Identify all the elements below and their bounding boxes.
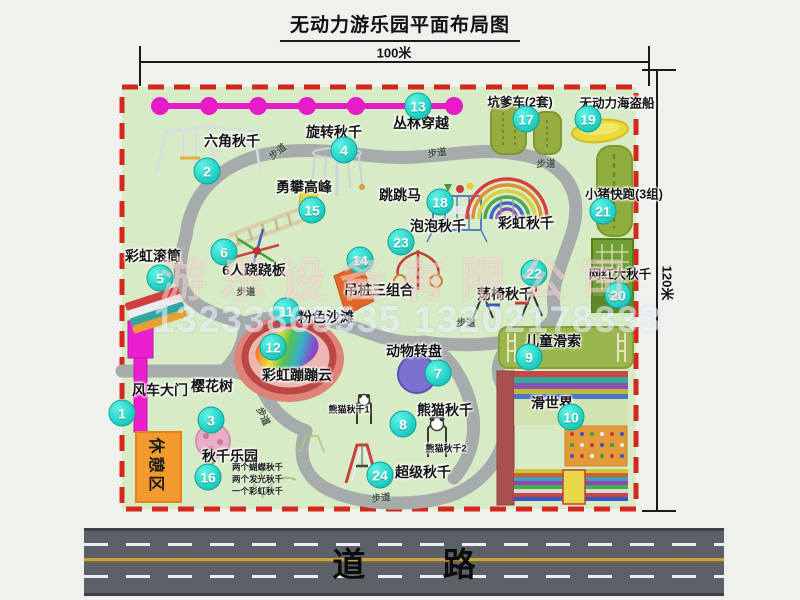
attraction-label-20: 网红大秋千 — [589, 264, 652, 283]
attraction-label-12: 彩虹蹦蹦云 — [262, 365, 332, 385]
attraction-marker-5: 5 — [147, 265, 174, 292]
walkway-tag: 步道 — [427, 144, 448, 161]
walkway-tag: 步道 — [371, 489, 391, 505]
walkway-tag: 步道 — [456, 315, 475, 329]
attraction-label-15: 勇攀高峰 — [276, 177, 332, 197]
attraction-marker-1: 1 — [109, 400, 136, 427]
attraction-label-7: 动物转盘 — [386, 341, 442, 361]
attraction-marker-7: 7 — [425, 360, 452, 387]
walkway-tag: 步道 — [536, 156, 555, 170]
page-title: 无动力游乐园平面布局图 — [280, 10, 520, 42]
attraction-marker-19: 19 — [575, 106, 602, 133]
attraction-label-1: 风车大门 — [132, 380, 188, 400]
attraction-marker-3: 3 — [198, 407, 225, 434]
height-dimension-label: 120米 — [659, 266, 678, 301]
attraction-marker-6: 6 — [211, 239, 238, 266]
rainbow-cloud-icon — [234, 316, 344, 402]
attraction-label-24: 超级秋千 — [395, 462, 451, 482]
attraction-marker-21: 21 — [590, 198, 617, 225]
attraction-marker-12: 12 — [260, 334, 287, 361]
attraction-marker-9: 9 — [516, 344, 543, 371]
attraction-marker-11: 11 — [273, 298, 300, 325]
attraction-marker-14: 14 — [347, 247, 374, 274]
attraction-label-22: 荡椅秋千 — [477, 284, 533, 304]
attraction-label-2: 六角秋千 — [204, 131, 260, 151]
attraction-label-14: 吊桩三组合 — [344, 280, 414, 300]
attraction-marker-13: 13 — [405, 93, 432, 120]
panda-swing-2-label: 熊猫秋千2 — [425, 442, 466, 455]
attraction-label-11: 粉色沙滩 — [298, 307, 354, 327]
attraction-marker-17: 17 — [513, 106, 540, 133]
map-illustrations — [0, 0, 800, 600]
rainbow-roller-icon — [124, 286, 187, 334]
attraction-marker-4: 4 — [331, 137, 358, 164]
road-label: 道 路 — [298, 538, 509, 586]
watermark-phone: 13233865535 13202178333 — [154, 299, 663, 341]
attraction-label-18: 跳跳马 — [379, 185, 421, 205]
attraction-marker-15: 15 — [299, 197, 326, 224]
attraction-label-3: 樱花树 — [191, 376, 233, 396]
panda-swing-1-label: 熊猫秋千1 — [328, 403, 369, 416]
attraction-marker-23: 23 — [388, 229, 415, 256]
attraction-marker-16: 16 — [195, 464, 222, 491]
attraction-marker-2: 2 — [194, 158, 221, 185]
walkway-tag: 步道 — [254, 404, 275, 427]
walkway-tag: 步道 — [265, 140, 289, 163]
note-line: 两个蝴蝶秋千 — [232, 461, 283, 473]
park-layout-page: 无动力游乐园平面布局图 100米 120米 1 2 3 4 5 6 7 8 9 … — [0, 0, 800, 600]
road: 道 路 — [84, 528, 724, 596]
attraction-marker-24: 24 — [367, 462, 394, 489]
rest-area-label: 休憩区 — [146, 437, 170, 494]
swing-paradise-notes: 两个蝴蝶秋千 两个发光秋千 一个彩虹秋千 — [232, 461, 283, 497]
attraction-label-23: 泡泡秋千 — [410, 216, 466, 236]
rainbow-swing-label: 彩虹秋千 — [498, 213, 554, 233]
slide-world-icon — [497, 371, 628, 505]
note-line: 两个发光秋千 — [232, 473, 283, 485]
attraction-marker-8: 8 — [390, 411, 417, 438]
attraction-marker-10: 10 — [558, 404, 585, 431]
attraction-marker-18: 18 — [427, 189, 454, 216]
width-dimension-label: 100米 — [377, 43, 412, 62]
walkway-tag: 步道 — [236, 284, 255, 298]
attraction-label-8: 熊猫秋千 — [417, 400, 473, 420]
attraction-marker-22: 22 — [521, 260, 548, 287]
attraction-marker-20: 20 — [605, 282, 632, 309]
note-line: 一个彩虹秋千 — [232, 485, 283, 497]
attraction-label-5: 彩虹滚筒 — [125, 246, 181, 266]
